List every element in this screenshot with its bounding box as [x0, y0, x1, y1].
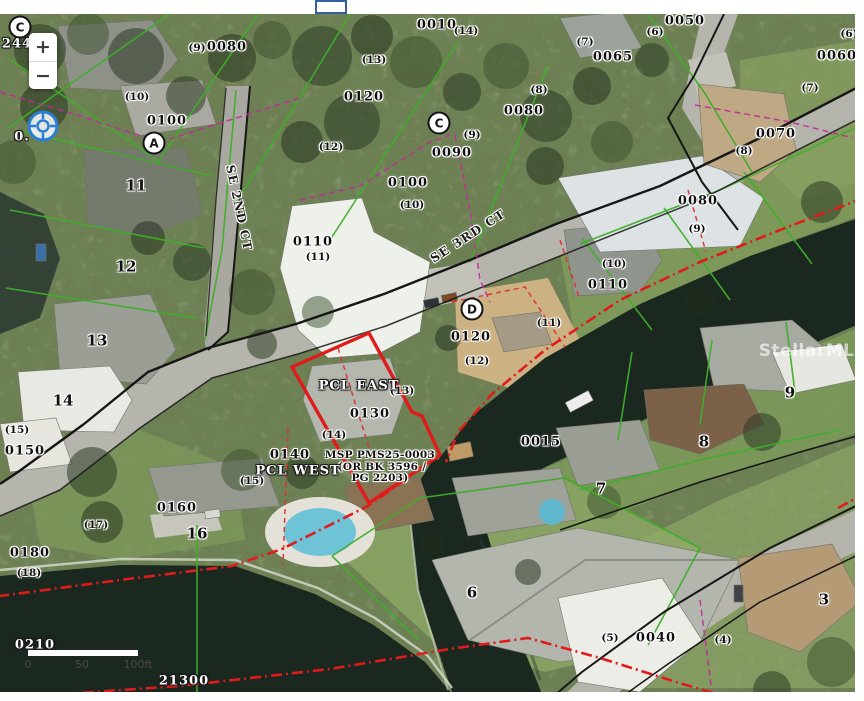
parcel-number-label: 0160	[157, 502, 197, 515]
stellar-mls-watermark: StellarMLS	[759, 341, 864, 361]
parcel-number-label: 0060	[817, 50, 857, 63]
scale-tick-label: 100ft	[124, 658, 153, 671]
frame-strip-top	[0, 0, 864, 14]
lot-number-label: 7	[596, 482, 606, 497]
lot-sublabel: (8)	[735, 146, 752, 157]
parcel-number-label: 0050	[665, 15, 705, 28]
parcel-number-label: 0120	[451, 331, 491, 344]
lot-sublabel: (17)	[84, 520, 109, 531]
lot-sublabel: (8)	[530, 85, 547, 96]
lot-sublabel: (9)	[463, 130, 480, 141]
parcel-number-label: 0015	[521, 436, 561, 449]
parcel-number-label: 0140	[270, 449, 310, 462]
lot-sublabel: (10)	[400, 200, 425, 211]
frame-strip-bottom	[0, 692, 864, 701]
lot-sublabel: (12)	[465, 356, 490, 367]
zoom-in-button[interactable]: +	[29, 33, 57, 61]
gis-parcel-map: 0010008001200100006500500060007000800090…	[0, 0, 864, 701]
deed-reference-line: PG 2203)	[351, 473, 408, 484]
lot-number-label: 14	[53, 394, 74, 409]
lot-sublabel: (10)	[125, 92, 150, 103]
parcel-number-label: 0180	[10, 547, 50, 560]
lot-sublabel: (7)	[576, 37, 593, 48]
parcel-number-label: 0070	[756, 128, 796, 141]
lot-sublabel: (14)	[454, 26, 479, 37]
lot-sublabel: (6)	[646, 27, 663, 38]
lot-number-label: 6	[467, 586, 477, 601]
lot-number-label: 3	[819, 593, 829, 608]
parcel-number-label: 0090	[432, 147, 472, 160]
highlight-label: PCL WEST	[255, 465, 340, 478]
parcel-number-label: 0110	[293, 236, 333, 249]
lot-sublabel: (12)	[319, 142, 344, 153]
lot-number-label: 16	[187, 527, 208, 542]
gps-crosshair-icon	[27, 110, 59, 142]
map-ref-marker-c: C	[428, 112, 451, 135]
lot-sublabel: (9)	[188, 43, 205, 54]
parcel-number-label: 0100	[388, 177, 428, 190]
aerial-basemap	[0, 0, 864, 701]
lot-sublabel: (13)	[362, 55, 387, 66]
lot-number-label: 11	[126, 179, 147, 194]
parcel-number-label: 0120	[344, 91, 384, 104]
parcel-number-label: 0080	[207, 41, 247, 54]
lot-sublabel: (10)	[602, 259, 627, 270]
lot-sublabel: (15)	[5, 425, 30, 436]
lot-sublabel: (11)	[537, 318, 562, 329]
frame-strip-right	[855, 0, 864, 701]
highlight-label: PCL EAST	[319, 380, 400, 393]
parcel-number-label: 0065	[593, 51, 633, 64]
lot-sublabel: (4)	[714, 635, 731, 646]
lot-sublabel: (9)	[688, 224, 705, 235]
map-ref-marker-d: D	[461, 298, 484, 321]
lot-sublabel: (14)	[322, 430, 347, 441]
parcel-number-label: 0100	[147, 115, 187, 128]
deed-reference-line: (OR BK 3596 /	[338, 462, 427, 473]
parcel-number-label: 0080	[678, 195, 718, 208]
highlight-label: 244	[2, 38, 32, 51]
deed-reference-line: MSP PMS25-0003	[325, 450, 435, 461]
map-ref-marker-c: C	[9, 16, 32, 39]
lot-sublabel: (18)	[17, 568, 42, 579]
parcel-number-label: 0010	[417, 19, 457, 32]
map-frame-fragment-box	[315, 0, 347, 14]
parcel-number-label: 0110	[588, 279, 628, 292]
scale-tick-label: 50	[75, 658, 89, 671]
highlight-label: 21300	[159, 675, 209, 688]
lot-number-label: 13	[87, 334, 108, 349]
lot-number-label: 9	[785, 386, 795, 401]
zoom-control: + −	[29, 33, 57, 89]
lot-number-label: 12	[116, 260, 137, 275]
parcel-number-label: 0080	[504, 105, 544, 118]
parcel-number-label: 0040	[636, 632, 676, 645]
scale-tick-label: 0	[25, 658, 32, 671]
map-ref-marker-a: A	[143, 132, 166, 155]
parcel-number-label: 0130	[350, 408, 390, 421]
lot-sublabel: (7)	[801, 83, 818, 94]
scale-bar	[28, 650, 138, 656]
lot-number-label: 8	[699, 435, 709, 450]
lot-sublabel: (5)	[601, 633, 618, 644]
parcel-number-label: 0150	[5, 445, 45, 458]
zoom-out-button[interactable]: −	[29, 61, 57, 89]
lot-sublabel: (11)	[306, 252, 331, 263]
